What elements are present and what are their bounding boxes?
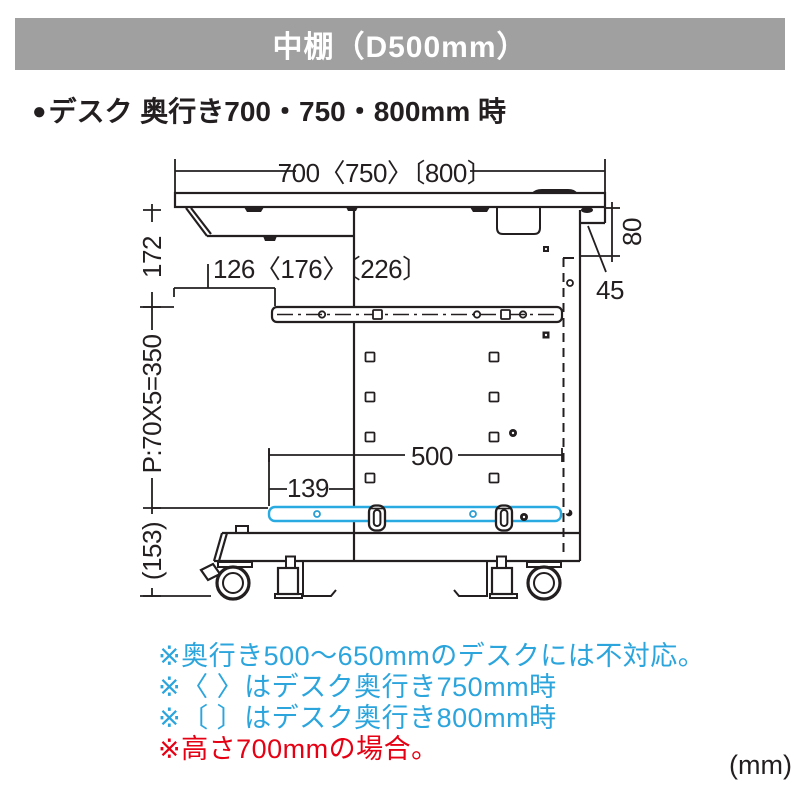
leader-line-45: [588, 226, 606, 272]
note-item: ※〔 〕はデスク奥行き800mm時: [158, 703, 705, 734]
dimension-label-desk-depth: 700〈750〉〔800〕: [278, 158, 493, 188]
dimension-label-139: 139: [287, 473, 329, 503]
dimension-label-45: 45: [596, 275, 624, 305]
note-item: ※〈 〉はデスク奥行き750mm時: [158, 672, 705, 703]
notes-list: ※奥行き500〜650mmのデスクには不対応。 ※〈 〉はデスク奥行き750mm…: [158, 641, 705, 765]
leveling-foot-left: [275, 557, 336, 599]
dimension-label-500: 500: [411, 441, 453, 471]
side-panel: [563, 210, 580, 561]
page: 中棚（D500mm） ●デスク 奥行き700・750・800mm 時 700〈7…: [0, 0, 800, 800]
unit-label: (mm): [700, 750, 792, 781]
dimension-label-pitch: P:70X5=350: [137, 335, 167, 474]
leveling-foot-right: [454, 557, 517, 599]
note-item: ※高さ700mmの場合。: [158, 734, 705, 765]
note-item: ※奥行き500〜650mmのデスクには不対応。: [158, 641, 705, 672]
dimension-label-126: 126〈176〉〔226〕: [213, 254, 428, 284]
dimension-label-153: (153): [137, 522, 167, 580]
dimension-label-172: 172: [137, 236, 167, 278]
dimension-label-80: 80: [617, 218, 647, 246]
under-desk-tray: [186, 208, 354, 241]
base-frame: [214, 526, 580, 561]
support-rail: [272, 307, 562, 322]
middle-shelf: [269, 507, 561, 521]
cable-cover-bump: [532, 189, 577, 193]
mounting-bracket: [497, 208, 540, 234]
caster-right: [527, 562, 561, 599]
caster-left: [201, 562, 252, 599]
